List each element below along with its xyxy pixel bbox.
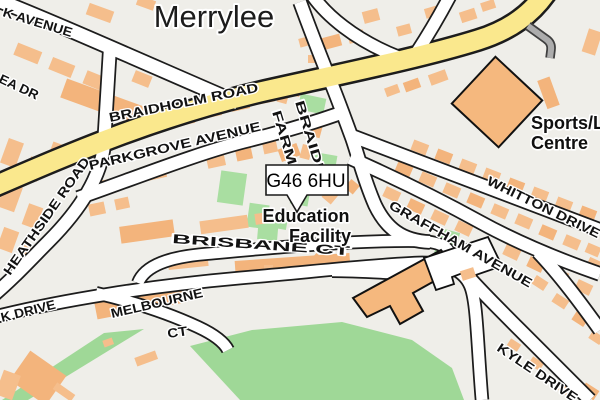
poi-education-line2: Facility	[289, 226, 351, 246]
postcode-marker-text: G46 6HU	[266, 171, 345, 192]
place-title: Merrylee	[154, 0, 275, 34]
map-frame: Merrylee K AVENUE EA DR BRAIDHOLM ROAD P…	[0, 0, 600, 400]
road-label-melbourne-line2: CT	[166, 323, 188, 341]
poi-sports-line2: Centre	[531, 133, 588, 153]
poi-education-line1: Education	[262, 206, 349, 226]
poi-sports-line1: Sports/L	[531, 113, 600, 133]
map-canvas[interactable]: Merrylee K AVENUE EA DR BRAIDHOLM ROAD P…	[0, 0, 600, 400]
